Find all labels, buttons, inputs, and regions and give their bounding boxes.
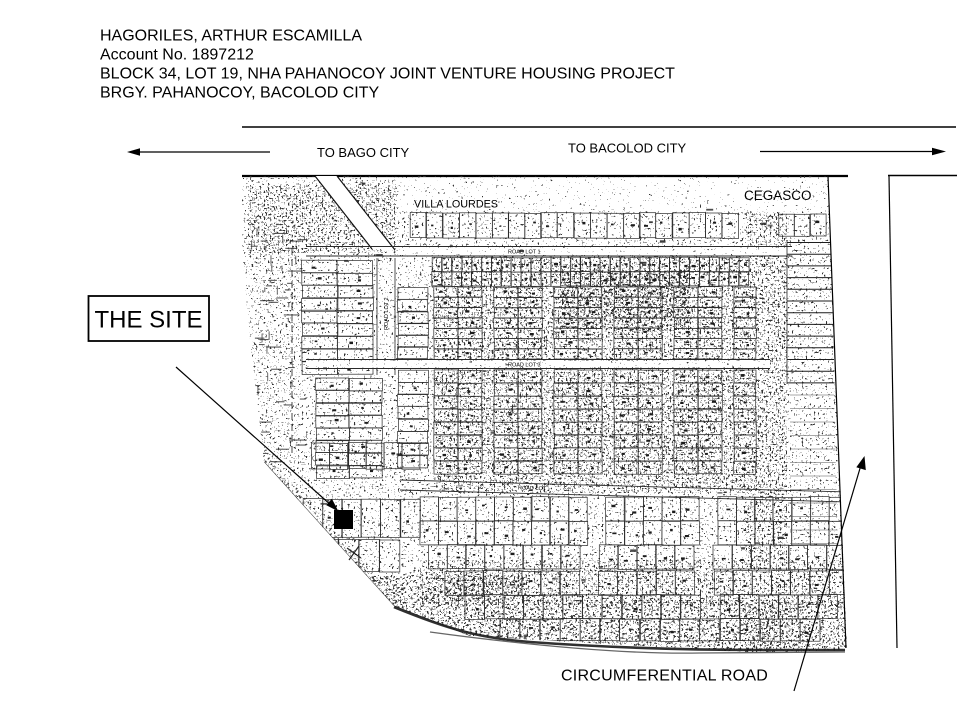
svg-text:HAGORILES, ARTHUR ESCAMILLA: HAGORILES, ARTHUR ESCAMILLA [100,28,362,45]
svg-text:TO BACOLOD CITY: TO BACOLOD CITY [568,141,687,156]
svg-text:VILLA LOURDES: VILLA LOURDES [414,199,498,211]
svg-text:TO BAGO CITY: TO BAGO CITY [317,145,410,160]
svg-text:Account No. 1897212: Account No. 1897212 [100,47,254,64]
svg-text:ROAD LOT 3: ROAD LOT 3 [508,363,541,369]
svg-text:ROAD LOT 2: ROAD LOT 2 [384,297,390,330]
svg-text:ROAD LOT: ROAD LOT [518,486,547,493]
svg-text:CEGASCO: CEGASCO [744,188,812,203]
svg-text:BRGY. PAHANOCOY, BACOLOD CITY: BRGY. PAHANOCOY, BACOLOD CITY [100,85,380,102]
svg-text:THE SITE: THE SITE [94,307,202,334]
svg-text:BLOCK 34, LOT 19, NHA PAHANOCO: BLOCK 34, LOT 19, NHA PAHANOCOY JOINT VE… [100,66,675,83]
svg-text:CIRCUMFERENTIAL ROAD: CIRCUMFERENTIAL ROAD [561,668,768,685]
svg-text:ROAD LOT 1: ROAD LOT 1 [508,250,541,256]
